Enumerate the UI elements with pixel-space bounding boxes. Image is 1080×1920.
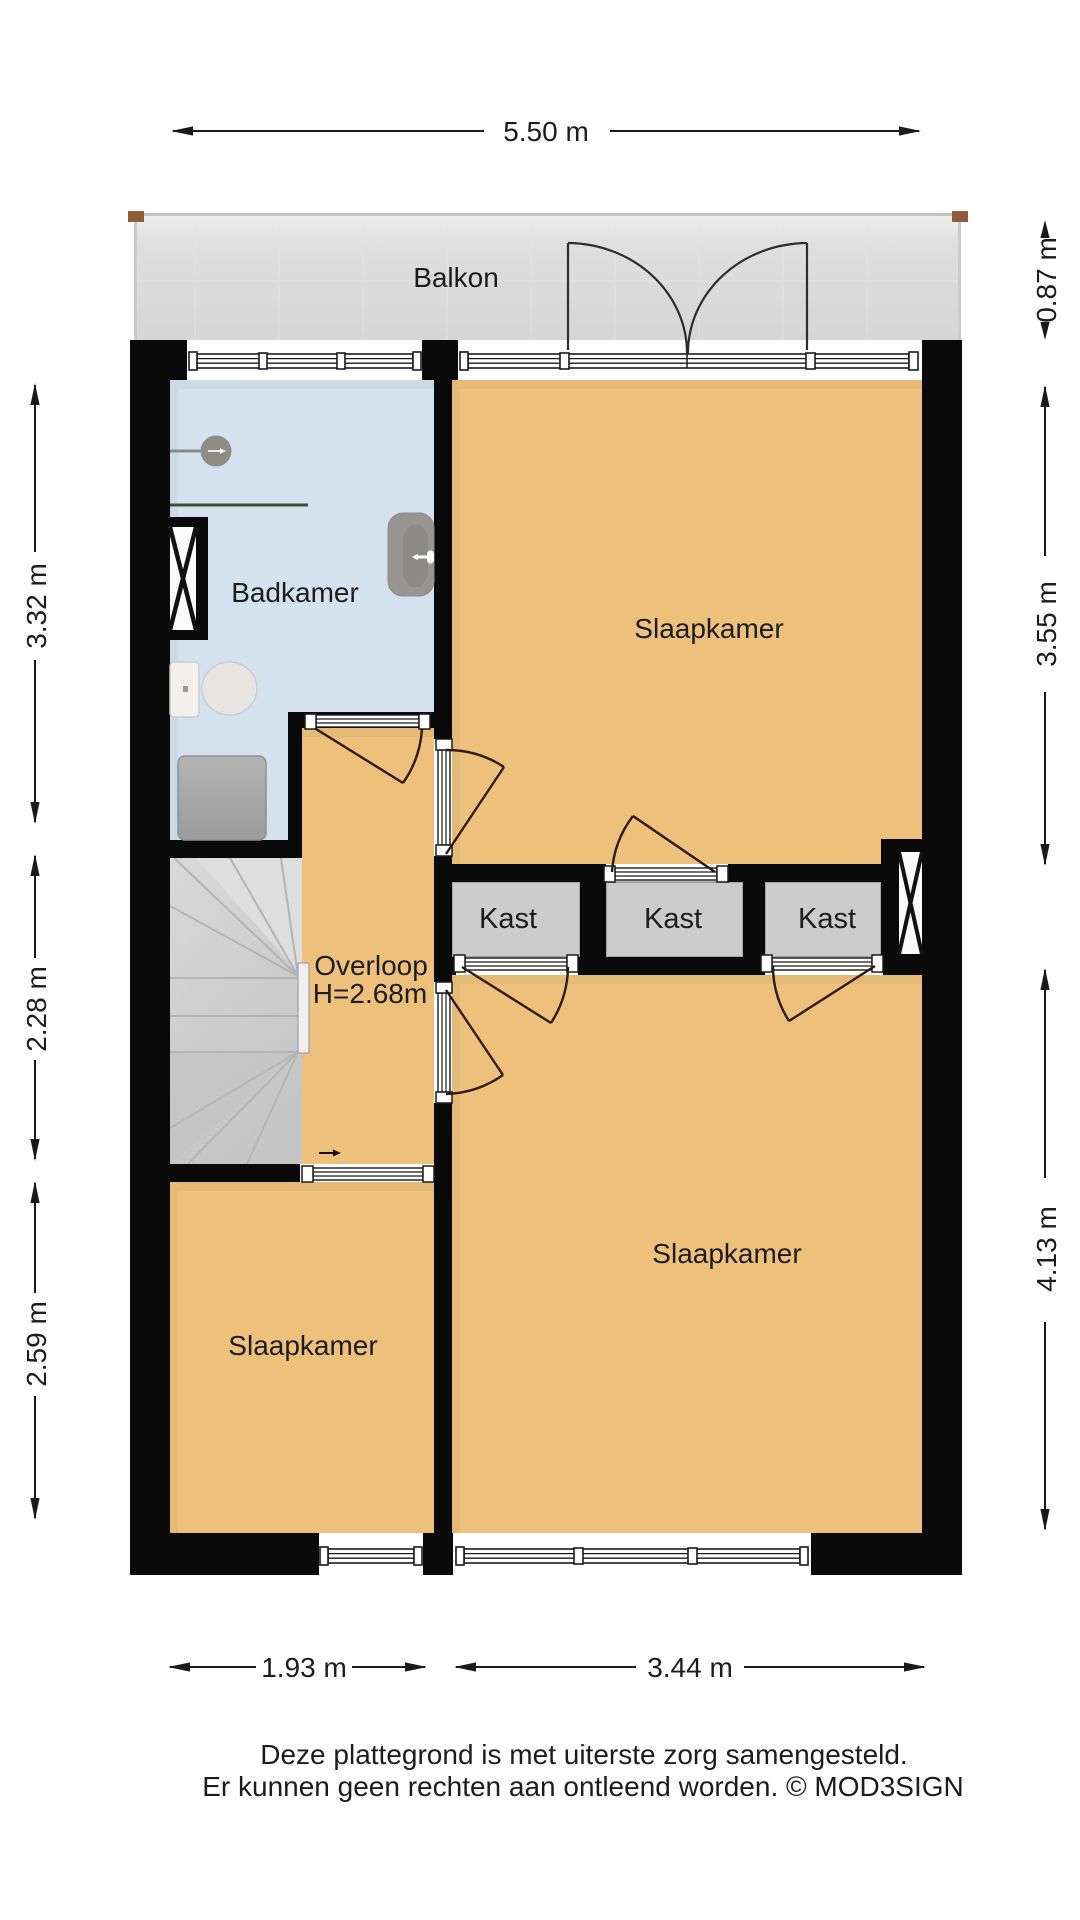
svg-text:Er kunnen geen rechten aan ont: Er kunnen geen rechten aan ontleend word… — [202, 1771, 964, 1802]
svg-text:2.28 m: 2.28 m — [21, 966, 52, 1052]
svg-text:H=2.68m: H=2.68m — [313, 978, 427, 1009]
svg-text:1.93 m: 1.93 m — [261, 1652, 347, 1683]
svg-text:5.50 m: 5.50 m — [503, 116, 589, 147]
svg-text:Slaapkamer: Slaapkamer — [634, 613, 783, 644]
svg-text:Overloop: Overloop — [314, 950, 428, 981]
svg-text:0.87 m: 0.87 m — [1031, 237, 1062, 323]
svg-text:3.44 m: 3.44 m — [647, 1652, 733, 1683]
svg-text:Kast: Kast — [479, 903, 537, 935]
svg-text:Badkamer: Badkamer — [231, 577, 359, 608]
svg-text:Kast: Kast — [644, 903, 702, 935]
svg-text:3.32 m: 3.32 m — [21, 563, 52, 649]
svg-text:4.13 m: 4.13 m — [1031, 1206, 1062, 1292]
svg-text:3.55 m: 3.55 m — [1031, 581, 1062, 667]
svg-text:Kast: Kast — [798, 903, 856, 935]
svg-text:Slaapkamer: Slaapkamer — [228, 1330, 377, 1361]
svg-text:Balkon: Balkon — [413, 262, 499, 293]
svg-text:Deze plattegrond is met uiters: Deze plattegrond is met uiterste zorg sa… — [260, 1739, 907, 1770]
svg-text:2.59 m: 2.59 m — [21, 1301, 52, 1387]
svg-text:Slaapkamer: Slaapkamer — [652, 1238, 801, 1269]
